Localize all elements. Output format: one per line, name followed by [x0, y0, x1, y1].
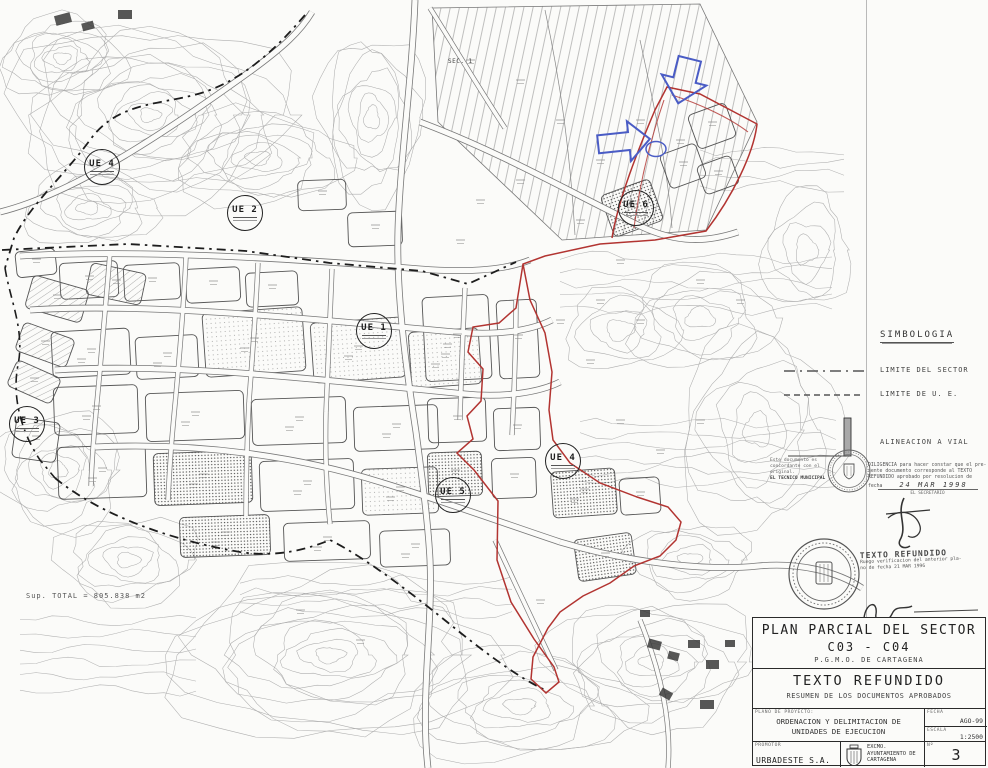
- legend-title: SIMBOLOGIA: [880, 330, 954, 343]
- diligencia-stamp: DILIGENCIA para hacer constar que el pre…: [868, 463, 987, 497]
- escala-value: 1:2500: [960, 733, 983, 741]
- dash-dot-line-icon: [784, 368, 864, 374]
- ue-marker: UE 6: [618, 190, 654, 226]
- texto-refundido-stamp: TEXTO REFUNDIDO Ruego verificacion del a…: [860, 547, 987, 572]
- promotor-value: URBADESTE S.A.: [756, 756, 830, 765]
- total-surface-label: Sup. TOTAL = 805.838 m2: [26, 592, 146, 600]
- sector-area-label: SEC. 1: [448, 58, 473, 65]
- sector-code: C03 - C04: [753, 640, 985, 654]
- escala-label: ESCALA: [927, 728, 947, 733]
- ue-marker: UE 5: [435, 477, 471, 513]
- pgmo-subtitle: P.G.M.O. DE CARTAGENA: [753, 656, 985, 664]
- promotor-label: PROMOTOR: [755, 743, 781, 748]
- doc-subtitle: RESUMEN DE LOS DOCUMENTOS APROBADOS: [753, 692, 985, 700]
- ue-marker: UE 2: [227, 195, 263, 231]
- fecha-value: AGO-99: [960, 717, 983, 725]
- dashed-line-icon: [784, 392, 864, 398]
- sheet-margin-line: [866, 0, 867, 618]
- municipal-seal-small: [826, 448, 872, 494]
- plan-title: PLAN PARCIAL DEL SECTOR: [753, 623, 985, 638]
- title-block: PLAN PARCIAL DEL SECTOR C03 - C04 P.G.M.…: [752, 617, 986, 766]
- plan-sheet: SEC. 1 Sup. TOTAL = 805.838 m2 UE 4 UE 2…: [0, 0, 988, 768]
- approval-date: 24 MAR 1998: [899, 481, 967, 489]
- legend-item-label: ALINEACION A VIAL: [880, 438, 969, 446]
- ue-marker: UE 1: [356, 313, 392, 349]
- plan-label: PLANO DE PROYECTO:: [755, 710, 814, 715]
- ue-marker: UE 3: [9, 406, 45, 442]
- doc-title: TEXTO REFUNDIDO: [753, 673, 985, 689]
- legend-item-label: LIMITE DEL SECTOR: [880, 366, 969, 374]
- legend-item-label: LIMITE DE U. E.: [880, 390, 958, 398]
- ue-marker: UE 4: [84, 149, 120, 185]
- verification-note: Este documento es concordante con el ori…: [770, 458, 834, 482]
- ayuntamiento-seal-large: [786, 536, 862, 612]
- ue-marker: UE 4: [545, 443, 581, 479]
- sheet-number-value: 3: [925, 746, 987, 764]
- fecha-label: FECHA: [927, 710, 943, 715]
- city-shield-icon: [845, 744, 863, 766]
- signature-scribble: [882, 496, 942, 552]
